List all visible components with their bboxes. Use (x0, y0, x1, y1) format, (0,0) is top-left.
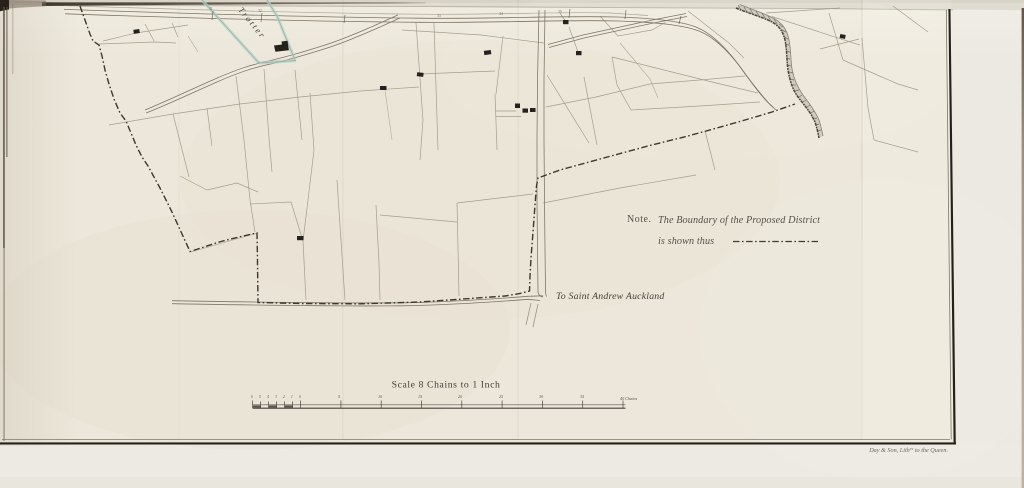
svg-text:31: 31 (209, 7, 213, 11)
svg-text:32: 32 (258, 9, 262, 13)
svg-text:35: 35 (558, 10, 562, 14)
svg-text:1: 1 (291, 395, 293, 399)
svg-text:is shown thus: is shown thus (658, 236, 714, 247)
svg-text:2: 2 (283, 395, 285, 399)
svg-text:The Boundary of the Proposed D: The Boundary of the Proposed District (658, 215, 821, 226)
svg-text:5: 5 (338, 394, 340, 399)
svg-text:33: 33 (437, 14, 441, 18)
svg-text:3: 3 (275, 395, 277, 399)
svg-text:25: 25 (499, 394, 503, 399)
svg-text:0: 0 (299, 395, 301, 399)
svg-text:34: 34 (499, 12, 503, 16)
svg-text:15: 15 (418, 394, 422, 399)
svg-text:35: 35 (580, 394, 584, 399)
svg-text:6: 6 (251, 395, 253, 399)
svg-text:5: 5 (259, 395, 261, 399)
svg-text:40 Chains: 40 Chains (620, 396, 637, 401)
svg-text:Scale 8 Chains to 1 Inch: Scale 8 Chains to 1 Inch (392, 380, 501, 391)
svg-text:Day & Son, Lithrs to the Queen: Day & Son, Lithrs to the Queen. (868, 446, 948, 454)
svg-text:To Saint Andrew Auckland: To Saint Andrew Auckland (556, 291, 665, 302)
svg-text:Note.: Note. (627, 214, 651, 225)
svg-text:4: 4 (267, 395, 269, 399)
